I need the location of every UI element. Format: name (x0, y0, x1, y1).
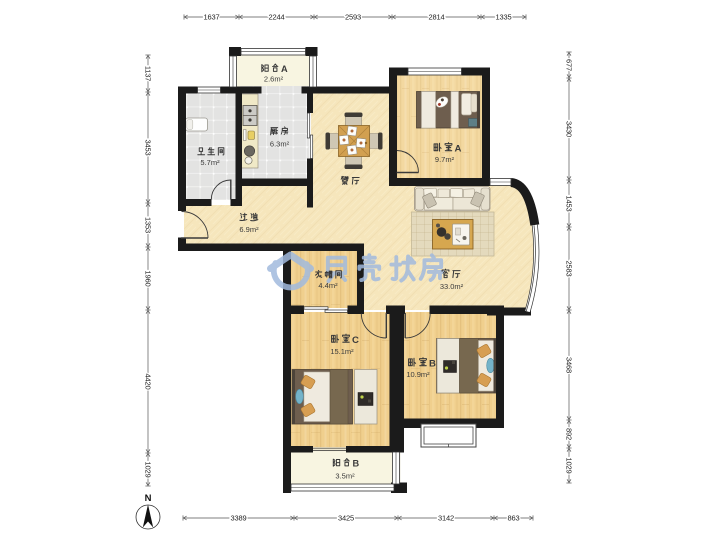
svg-text:3468: 3468 (565, 357, 574, 373)
svg-text:3142: 3142 (438, 513, 454, 522)
svg-text:892: 892 (565, 428, 574, 440)
svg-text:1137: 1137 (144, 66, 153, 81)
svg-text:3.5m²: 3.5m² (335, 472, 355, 481)
svg-text:1960: 1960 (144, 271, 153, 287)
svg-text:A: A (455, 144, 462, 155)
svg-text:1637: 1637 (204, 12, 220, 21)
svg-text:2593: 2593 (345, 12, 361, 21)
svg-text:2.6m²: 2.6m² (264, 75, 284, 84)
svg-text:N: N (145, 493, 152, 504)
svg-text:2814: 2814 (429, 12, 445, 21)
svg-text:3425: 3425 (338, 513, 354, 522)
svg-text:15.1m²: 15.1m² (330, 347, 354, 356)
svg-text:C: C (352, 335, 359, 346)
svg-text:2583: 2583 (565, 261, 574, 277)
svg-text:1029: 1029 (565, 458, 574, 474)
svg-text:B: B (429, 359, 436, 370)
svg-text:B: B (353, 458, 360, 468)
svg-text:6.3m²: 6.3m² (270, 140, 290, 149)
svg-text:1335: 1335 (496, 12, 512, 21)
svg-text:4.4m²: 4.4m² (318, 281, 338, 290)
svg-text:A: A (281, 64, 288, 74)
svg-text:9.7m²: 9.7m² (435, 155, 455, 164)
svg-text:3430: 3430 (565, 121, 574, 137)
svg-text:863: 863 (508, 513, 520, 522)
svg-text:1029: 1029 (144, 462, 153, 478)
svg-text:5.7m²: 5.7m² (200, 158, 220, 167)
svg-text:1453: 1453 (565, 196, 574, 212)
svg-text:1353: 1353 (144, 217, 153, 233)
svg-text:3389: 3389 (231, 513, 247, 522)
svg-text:10.9m²: 10.9m² (406, 370, 430, 379)
svg-text:677: 677 (565, 59, 574, 71)
svg-text:3453: 3453 (144, 140, 153, 156)
svg-text:33.0m²: 33.0m² (440, 282, 464, 291)
svg-text:6.9m²: 6.9m² (239, 225, 259, 234)
svg-text:2244: 2244 (269, 12, 285, 21)
svg-text:4420: 4420 (144, 374, 153, 390)
